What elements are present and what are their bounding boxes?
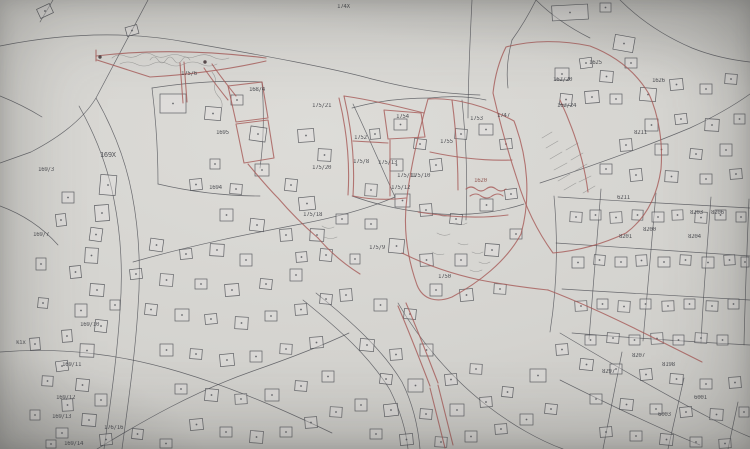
building-footprint [600,71,614,83]
building-footprint [130,268,143,279]
building-footprint [69,266,81,279]
parcel-label: 162/20 [553,77,573,83]
building-footprint [705,119,720,132]
building-center-dot [657,216,659,218]
building-footprint [725,74,738,85]
building-center-dot [114,304,116,306]
building-footprint [265,311,277,321]
parcel-label: 175/8 [353,159,370,165]
building-center-dot [526,419,528,421]
parcel-boundary-line [468,0,472,118]
building-footprint [99,174,117,195]
building-footprint [280,427,292,437]
building-center-dot [165,443,167,445]
building-footprint [370,129,381,140]
parcel-label: 162/24 [557,103,577,109]
building-footprint [552,4,589,21]
building-center-dot [67,197,69,199]
building-footprint [408,379,423,392]
building-footprint [730,169,743,180]
building-center-dot [485,129,487,131]
parcel-label: 175/21 [312,103,332,109]
building-footprint [700,379,712,389]
building-center-dot [740,216,742,218]
building-center-dot [100,399,102,401]
parcel-label: 169/13 [52,414,72,420]
building-footprint [30,410,40,420]
building-center-dot [695,441,697,443]
building-footprint [620,139,633,152]
building-center-dot [615,98,617,100]
parcel-label: 1755 [440,139,454,145]
building-center-dot [285,431,287,433]
parcel-label: 169/10 [80,322,100,328]
building-footprint [450,404,464,416]
parcel-boundary-line [560,333,750,437]
building-footprint [160,274,174,287]
parcel-boundary-line [462,100,467,220]
parcel-label: 8204 [688,234,702,240]
building-footprint [180,248,193,259]
building-footprint [706,301,718,311]
building-center-dot [515,233,517,235]
building-center-dot [61,432,63,434]
parcel-boundary-line [0,0,148,163]
parcel-label: 8211 [634,130,648,136]
parcel-boundary-line [507,40,512,88]
parcel-label: 168/4 [249,87,266,93]
parcel-label: kix [16,340,26,346]
red-pen-annotation [466,187,506,191]
building-footprint [465,431,477,442]
building-center-dot [595,214,597,216]
parcel-label: 1750 [438,274,452,280]
building-footprint [295,381,308,392]
building-center-dot [354,258,356,260]
building-footprint [629,335,640,345]
building-center-dot [678,339,680,341]
parcel-boundary-line [260,82,263,168]
building-footprint [680,406,693,417]
building-center-dot [605,7,607,9]
building-footprint [729,377,742,389]
pencil-scribble [566,143,595,193]
building-center-dot [689,303,691,305]
building-center-dot [615,368,617,370]
parcel-label: 169/3 [38,167,55,173]
building-footprint [420,204,433,217]
parcel-label: 1747 [497,113,511,119]
building-footprint [690,148,703,159]
building-footprint [455,254,467,266]
parcel-label: 175/20 [312,165,332,171]
building-footprint [480,199,493,211]
building-center-dot [620,261,622,263]
building-center-dot [270,315,272,317]
building-footprint [350,254,360,264]
building-footprint [690,437,702,447]
building-footprint [728,299,739,309]
building-center-dot [561,73,563,75]
parcel-label: 8200 [643,227,657,233]
building-footprint [579,358,593,370]
building-footprint [190,178,203,190]
building-footprint [734,114,745,124]
building-footprint [430,284,442,296]
pencil-scribble [542,132,576,190]
parcel-label: 169X [100,151,117,159]
building-footprint [445,373,458,385]
building-center-dot [295,274,297,276]
building-footprint [625,58,637,68]
building-footprint [684,299,695,309]
building-footprint [470,364,483,375]
parcel-boundary-line [620,0,750,62]
parcel-label: 8297 [602,369,616,375]
building-footprint [250,431,264,444]
parcel-label: 169/14 [64,441,84,447]
building-center-dot [743,411,745,413]
building-footprint [340,289,353,302]
building-footprint [204,106,221,120]
building-footprint [505,188,518,199]
building-center-dot [705,88,707,90]
building-center-dot [80,310,82,312]
building-footprint [404,308,417,319]
building-footprint [615,257,627,267]
building-center-dot [635,435,637,437]
building-footprint [640,368,653,380]
building-footprint [46,440,56,448]
building-center-dot [370,223,372,225]
building-footprint [160,344,173,356]
building-center-dot [415,385,417,387]
building-footprint [572,257,584,268]
parcel-label: 8207 [632,353,646,359]
building-center-dot [733,303,735,305]
parcel-label: 1754 [396,114,410,120]
building-footprint [210,159,220,169]
building-footprint [610,212,623,224]
building-footprint [225,284,240,297]
building-center-dot [705,178,707,180]
building-footprint [95,394,107,406]
building-footprint [594,255,606,266]
building-footprint [195,279,207,289]
building-footprint [556,344,569,356]
building-center-dot [327,376,329,378]
parcel-label: 8203 [690,210,704,216]
building-footprint [305,417,318,429]
building-center-dot [486,204,488,206]
parcel-label: 174X [337,4,351,10]
building-center-dot [537,375,539,377]
parcel-boundary-line [0,35,480,95]
building-footprint [717,335,728,345]
building-footprint [62,192,74,203]
building-center-dot [245,259,247,261]
building-footprint [736,212,746,222]
parcel-label: 175/12 [391,185,410,191]
building-footprint [630,431,642,441]
building-footprint [675,113,688,124]
parcel-label: 8198 [662,362,676,368]
building-center-dot [375,433,377,435]
parcel-label: 6211 [617,195,631,201]
parcel-label: 1753 [470,116,484,122]
building-footprint [610,94,622,104]
building-footprint [672,210,683,220]
parcel-label: 8201 [619,234,633,240]
building-footprint [310,229,325,242]
building-center-dot [435,289,437,291]
building-center-dot [705,383,707,385]
building-footprint [42,376,54,387]
building-footprint [658,257,670,267]
building-footprint [670,374,684,385]
building-footprint [695,333,708,344]
building-footprint [702,257,714,268]
building-center-dot [200,283,202,285]
building-footprint [530,369,546,382]
building-footprint [89,227,103,242]
parcel-label: 1620 [474,178,488,184]
building-footprint [310,337,324,349]
parcel-boundary-line [550,196,556,332]
red-pen-annotation [452,100,458,190]
parcel-label: 169/7 [33,232,50,238]
building-center-dot [261,169,263,171]
map-canvas: 174X169X169/3175/6168/416951694175/21175… [0,0,750,449]
building-footprint [651,333,664,345]
building-center-dot [402,200,404,202]
parcel-label: 6001 [694,395,708,401]
parcel-label: 1695 [216,130,230,136]
building-footprint [220,209,233,221]
building-center-dot [470,436,472,438]
parcel-label: 1752 [354,135,367,141]
building-footprint [429,158,442,171]
building-footprint [680,255,692,266]
building-footprint [662,301,674,311]
building-footprint [660,433,674,445]
building-footprint [719,439,731,449]
building-footprint [80,344,94,357]
building-footprint [724,255,736,266]
building-footprint [585,91,600,104]
building-footprint [700,84,712,94]
building-center-dot [236,99,238,101]
building-footprint [110,300,120,310]
building-center-dot [360,404,362,406]
building-footprint [220,427,232,437]
building-footprint [395,194,410,207]
building-center-dot [50,443,52,445]
building-footprint [296,252,308,263]
building-footprint [355,399,367,411]
building-footprint [545,403,558,414]
building-center-dot [226,214,228,216]
building-center-dot [651,124,653,126]
building-footprint [319,248,332,261]
parcel-label: 8206 [711,210,725,216]
building-footprint [380,373,393,384]
pencil-scribble [112,53,229,59]
building-footprint [322,371,334,382]
building-footprint [420,409,433,420]
building-footprint [290,269,302,281]
parcel-boundary-line [152,88,158,184]
building-footprint [175,384,187,394]
building-center-dot [181,314,183,316]
building-footprint [520,414,533,425]
building-footprint [710,409,724,421]
building-footprint [336,214,348,224]
building-center-dot [645,303,647,305]
parcel-label: 169/11 [62,362,82,368]
parcel-boundary-line [556,243,750,256]
red-pen-annotation [406,303,438,383]
building-footprint [600,164,612,174]
building-footprint [388,238,404,253]
building-footprint [100,433,113,445]
building-footprint [280,344,293,355]
building-center-dot [255,356,257,358]
parcel-boundary-line [0,206,58,245]
building-footprint [360,338,375,351]
building-footprint [455,129,468,140]
building-footprint [485,244,500,257]
parcel-boundary-line [152,81,262,88]
building-footprint [365,219,377,229]
building-center-dot [739,118,741,120]
parcel-label: 175/9 [369,245,386,251]
building-footprint [645,119,658,131]
building-footprint [160,439,172,448]
building-footprint [298,196,315,211]
building-footprint [175,309,189,321]
building-footprint [370,429,382,439]
building-footprint [600,3,611,12]
building-footprint [665,171,679,183]
building-footprint [210,244,225,257]
parcel-boundary-line [558,197,750,208]
building-footprint [670,78,684,90]
building-footprint [460,288,474,301]
building-center-dot [225,431,227,433]
building-footprint [502,387,514,398]
building-footprint [230,184,243,195]
parcel-label: 175/6 [181,71,198,77]
building-footprint [652,212,664,222]
building-center-dot [595,398,597,400]
building-footprint [570,212,583,223]
building-footprint [284,178,297,191]
building-footprint [132,429,144,440]
building-center-dot [707,262,709,264]
building-footprint [673,335,684,345]
building-footprint [383,403,398,416]
building-footprint [240,254,252,266]
parcel-boundary-line [133,197,395,262]
building-footprint [295,304,308,316]
parcel-boundary-line [0,350,332,433]
building-footprint [494,284,507,295]
building-center-dot [172,103,174,105]
building-footprint [149,238,164,252]
building-footprint [479,124,493,135]
building-footprint [298,128,315,142]
parcel-label: 1626 [652,78,666,84]
parcel-label: 175/10 [411,173,431,179]
building-footprint [190,418,204,430]
building-center-dot [630,62,632,64]
building-footprint [280,229,293,242]
building-footprint [394,119,407,130]
parcel-label: 169/12 [56,395,75,401]
building-footprint [250,351,262,362]
building-center-dot [180,388,182,390]
red-pen-annotation [470,194,503,198]
building-footprint [75,304,87,317]
building-footprint [94,205,109,222]
building-footprint [36,258,46,270]
building-footprint [741,257,749,267]
building-center-dot [40,263,42,265]
building-footprint [510,229,522,239]
building-footprint [640,299,651,309]
building-footprint [235,317,249,330]
building-footprint [30,338,41,351]
parcel-label: 175/18 [303,212,323,218]
building-footprint [249,126,267,142]
red-pen-dot [98,55,101,58]
building-footprint [739,407,749,417]
parcel-label: 1694 [209,185,223,191]
building-center-dot [725,149,727,151]
cadastral-map-photo: 174X169X169/3175/6168/416951694175/21175… [0,0,750,449]
building-footprint [636,255,648,267]
building-footprint [318,149,332,162]
parcel-label: 6003 [658,412,672,418]
building-footprint [585,335,596,345]
building-footprint [700,174,712,184]
building-footprint [600,427,613,438]
building-footprint [620,398,634,410]
building-center-dot [744,261,746,263]
building-footprint [590,210,601,220]
parcel-boundary-line [512,0,536,40]
building-center-dot [602,303,604,305]
building-footprint [435,437,448,448]
parcel-boundary-line [562,289,750,300]
building-footprint [365,184,378,197]
building-footprint [62,330,73,343]
building-footprint [235,394,248,405]
parcel-label: 176/16 [104,425,124,431]
red-pen-annotation [204,68,228,100]
building-footprint [231,95,243,105]
building-center-dot [34,414,36,416]
pencil-scribble [212,72,222,107]
buildings-layer [30,3,749,448]
building-footprint [90,284,105,297]
red-pen-dot [203,60,206,63]
building-footprint [597,299,608,309]
building-center-dot [166,349,168,351]
parcel-boundary-line [0,96,42,117]
building-footprint [205,388,219,401]
